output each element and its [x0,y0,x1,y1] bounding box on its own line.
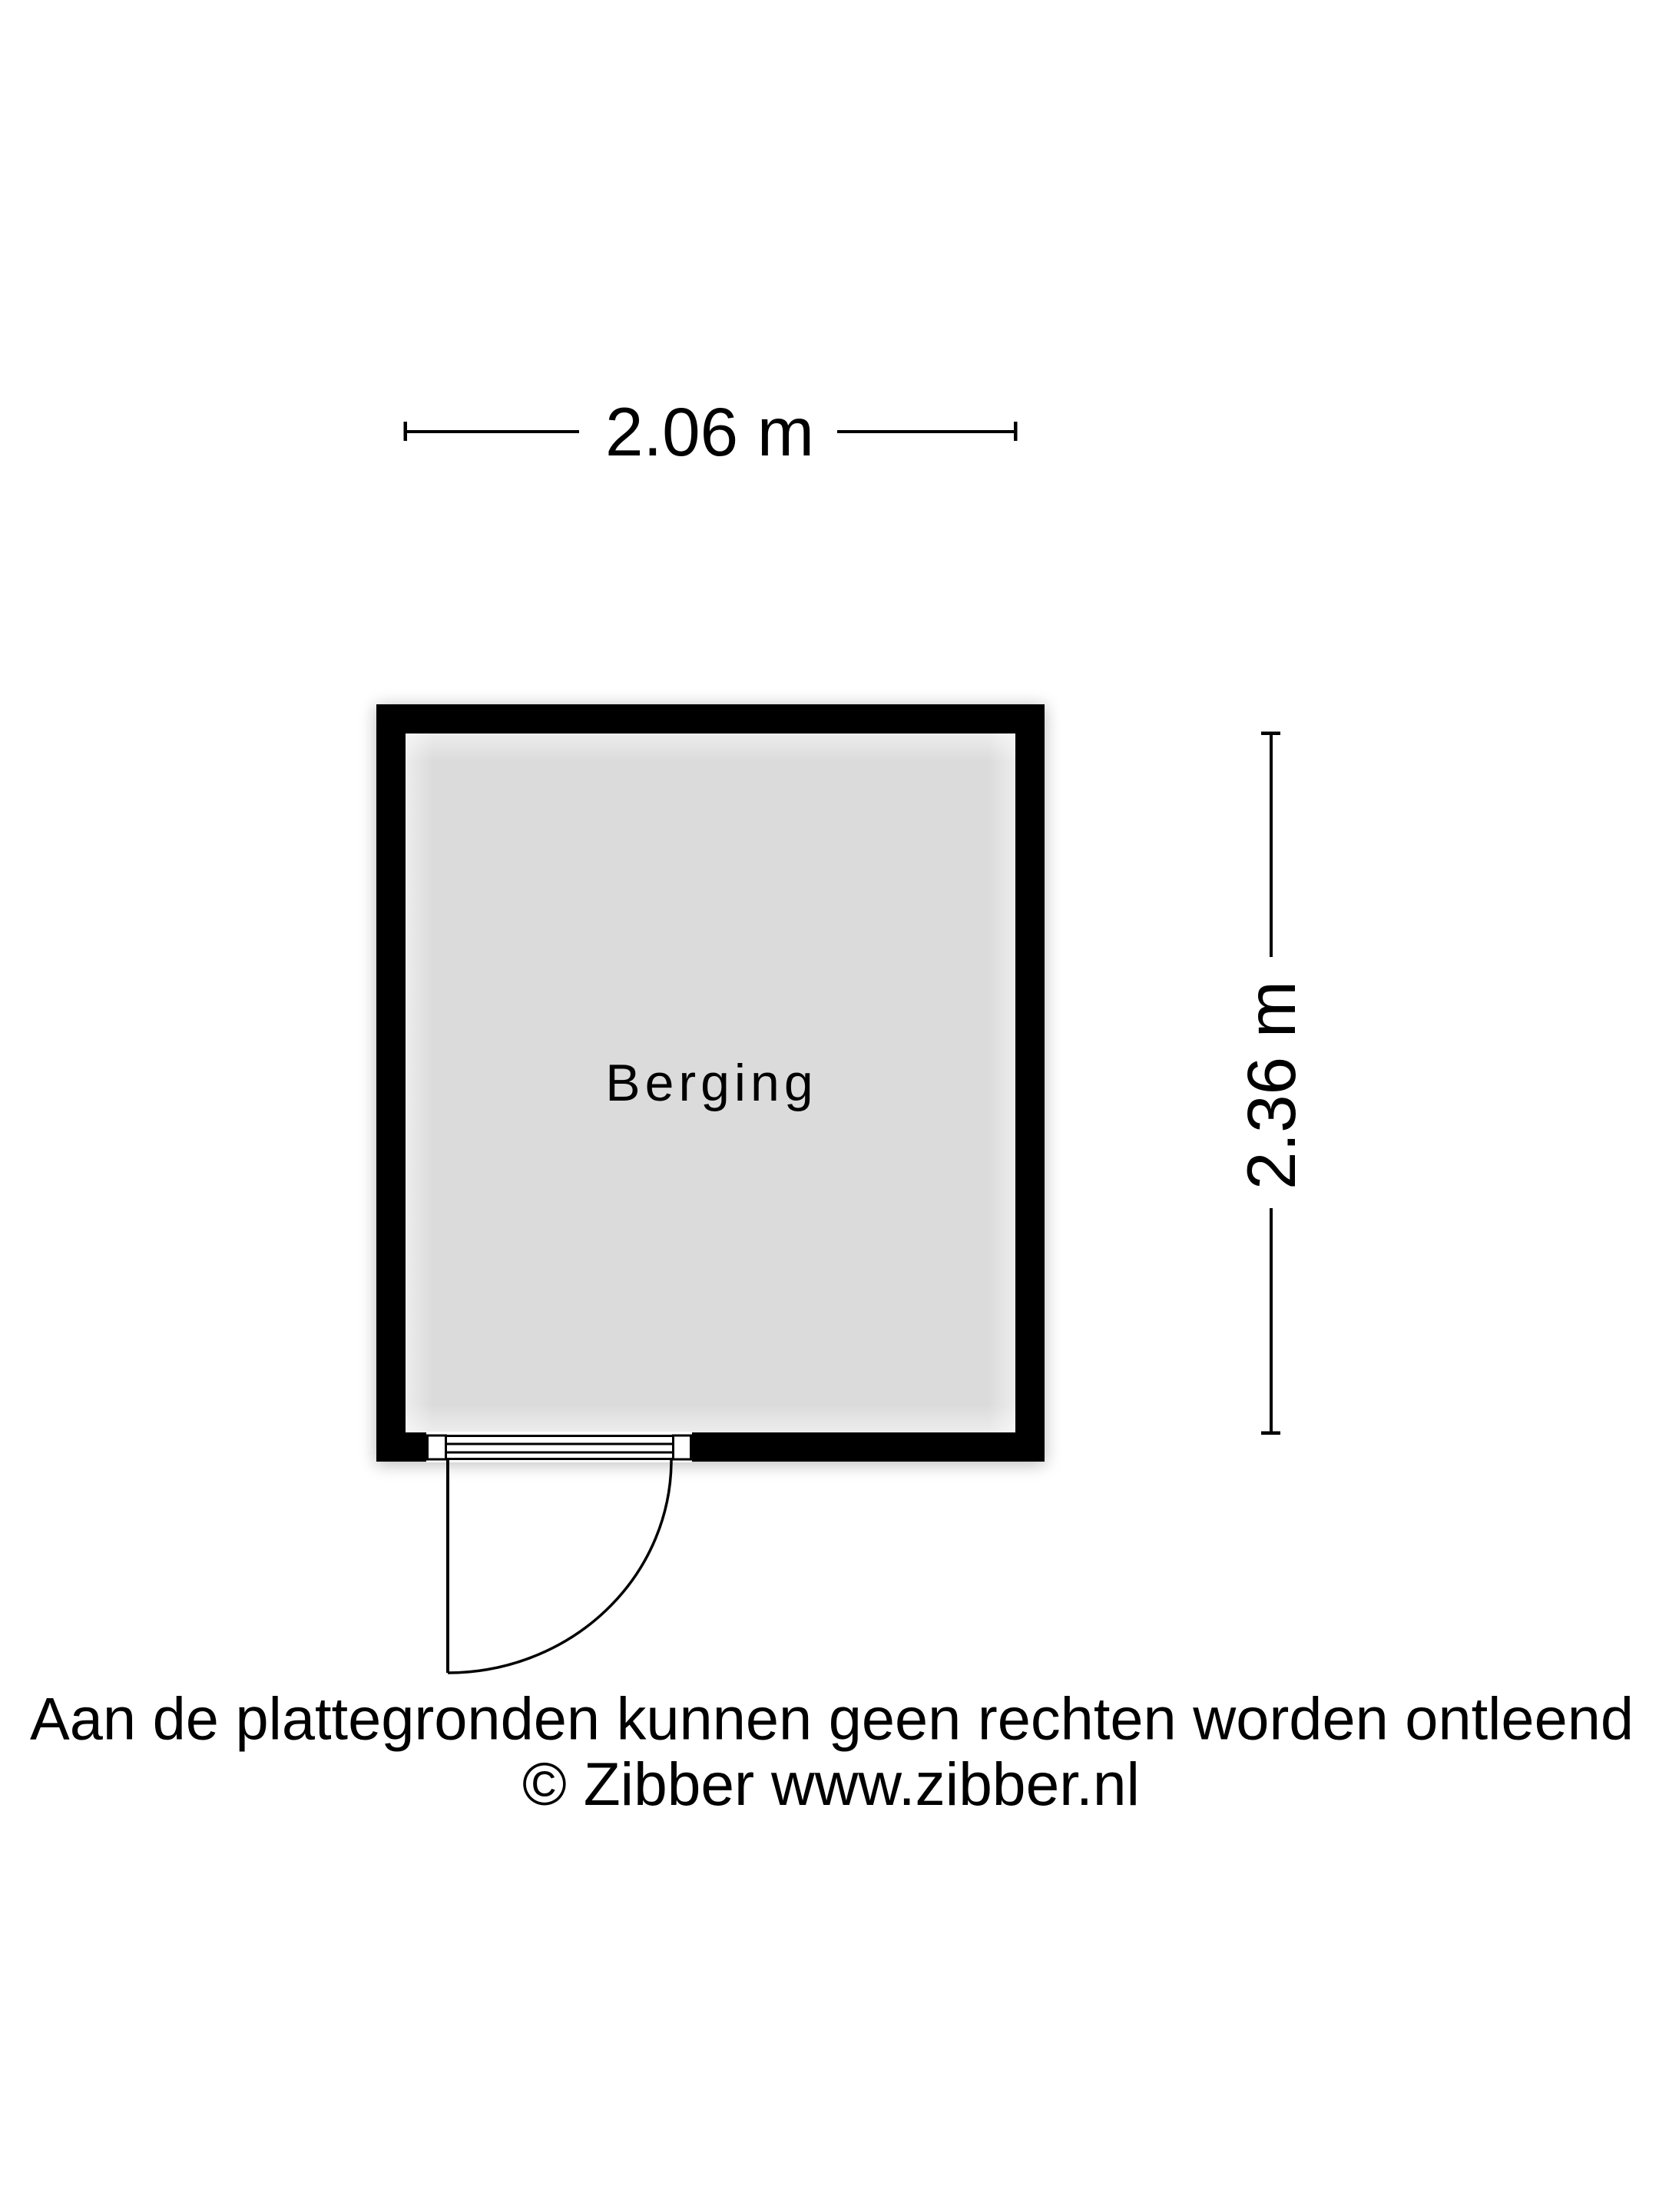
svg-text:2.06 m: 2.06 m [605,393,814,470]
svg-text:Berging: Berging [605,1054,817,1112]
svg-text:Aan de plattegronden kunnen ge: Aan de plattegronden kunnen geen rechten… [30,1687,1634,1753]
svg-text:© Zibber www.zibber.nl: © Zibber www.zibber.nl [522,1750,1140,1818]
svg-text:2.36 m: 2.36 m [1233,981,1310,1190]
